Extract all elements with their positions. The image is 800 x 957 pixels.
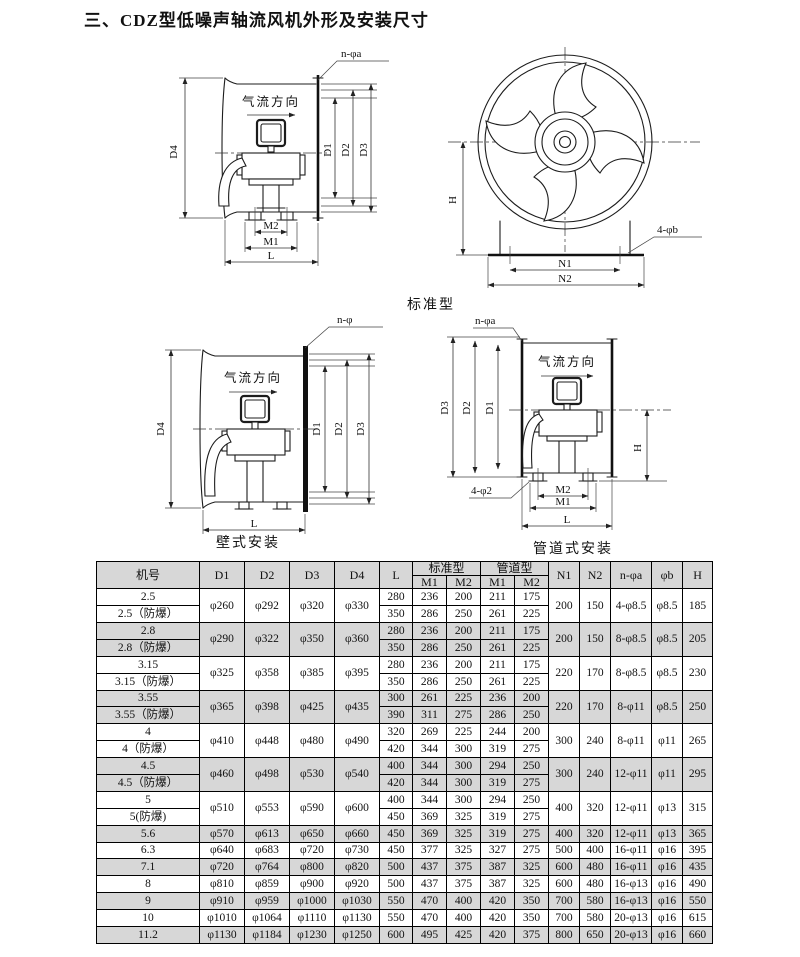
table-cell: φ910	[200, 893, 245, 910]
table-cell: 420	[380, 774, 413, 791]
machine-no-cell: 2.8	[97, 622, 200, 639]
table-header-cell: N1	[549, 562, 580, 589]
table-cell: 650	[580, 927, 611, 944]
table-cell: 286	[481, 707, 515, 724]
table-cell: 615	[683, 910, 713, 927]
table-cell: 350	[380, 606, 413, 623]
table-cell: 327	[481, 842, 515, 859]
duct-mount-drawing: 气流方向 n-φa D3 D2 D1 H 4-φ2 M2 M1 L	[425, 310, 715, 538]
machine-no-cell: 11.2	[97, 927, 200, 944]
table-cell: 300	[447, 758, 481, 775]
table-cell: 200	[515, 690, 549, 707]
table-header-cell: M1	[481, 575, 515, 589]
col-standard-type: 标准型	[413, 562, 481, 576]
table-cell: φ16	[652, 893, 683, 910]
table-header-cell: M2	[515, 575, 549, 589]
table-cell: φ395	[335, 656, 380, 690]
table-cell: 200	[447, 622, 481, 639]
table-cell: 175	[515, 656, 549, 673]
machine-no-cell: 7.1	[97, 859, 200, 876]
table-cell: 400	[580, 842, 611, 859]
table-cell: 700	[549, 893, 580, 910]
machine-no-cell: 5(防爆)	[97, 808, 200, 825]
table-cell: 20-φ13	[611, 910, 652, 927]
table-cell: 244	[481, 724, 515, 741]
table-cell: φ683	[245, 842, 290, 859]
table-cell: 211	[481, 656, 515, 673]
dim-label-d3: D3	[439, 401, 451, 415]
table-cell: 600	[549, 859, 580, 876]
machine-no-cell: 3.15（防爆）	[97, 673, 200, 690]
table-cell: 319	[481, 741, 515, 758]
table-row: 10φ1010φ1064φ1110φ1130550470400420350700…	[97, 910, 713, 927]
table-cell: 400	[380, 791, 413, 808]
table-cell: 286	[413, 673, 447, 690]
machine-no-cell: 4	[97, 724, 200, 741]
table-cell: 250	[515, 707, 549, 724]
table-cell: 320	[580, 791, 611, 825]
table-header-cell: D1	[200, 562, 245, 589]
table-cell: 16-φ13	[611, 893, 652, 910]
table-cell: φ365	[200, 690, 245, 724]
table-cell: φ13	[652, 825, 683, 842]
table-cell: 315	[683, 791, 713, 825]
table-cell: φ1250	[335, 927, 380, 944]
table-row: 4φ410φ448φ480φ4903202692252442003002408-…	[97, 724, 713, 741]
machine-no-cell: 4（防爆）	[97, 741, 200, 758]
table-cell: 400	[549, 825, 580, 842]
col-duct-type: 管道型	[481, 562, 549, 576]
table-cell: 275	[515, 774, 549, 791]
table-cell: 325	[447, 825, 481, 842]
table-cell: 437	[413, 859, 447, 876]
table-cell: 325	[447, 808, 481, 825]
table-cell: 300	[380, 690, 413, 707]
dim-label-d4: D4	[155, 422, 167, 436]
spec-table: 机号D1D2D3D4L标准型管道型N1N2n-φaφbHM1M2M1M2 2.5…	[96, 561, 713, 944]
table-cell: φ810	[200, 876, 245, 893]
table-cell: 495	[413, 927, 447, 944]
table-cell: 240	[580, 758, 611, 792]
table-cell: 170	[580, 656, 611, 690]
table-cell: 580	[580, 910, 611, 927]
table-cell: φ410	[200, 724, 245, 758]
table-cell: 236	[413, 589, 447, 606]
dim-label-n1: N1	[558, 258, 571, 270]
table-cell: 250	[447, 639, 481, 656]
table-cell: 205	[683, 622, 713, 656]
machine-no-cell: 3.15	[97, 656, 200, 673]
table-cell: 200	[549, 589, 580, 623]
table-cell: φ590	[290, 791, 335, 825]
table-cell: 225	[515, 606, 549, 623]
table-row: 6.3φ640φ683φ720φ730450377325327275500400…	[97, 842, 713, 859]
table-cell: 420	[481, 910, 515, 927]
wall-mount-drawing: 气流方向 n-φ D4 D1 D2 D3 L	[143, 306, 395, 538]
table-cell: 250	[515, 791, 549, 808]
table-cell: φ11	[652, 758, 683, 792]
table-cell: 350	[380, 673, 413, 690]
table-cell: 480	[580, 859, 611, 876]
table-cell: 4-φ8.5	[611, 589, 652, 623]
dim-label-l: L	[268, 250, 275, 262]
table-cell: φ435	[335, 690, 380, 724]
machine-no-cell: 2.5（防爆）	[97, 606, 200, 623]
table-cell: 280	[380, 656, 413, 673]
table-cell: φ325	[200, 656, 245, 690]
table-cell: φ490	[335, 724, 380, 758]
table-cell: 175	[515, 589, 549, 606]
table-cell: 275	[515, 741, 549, 758]
table-cell: 236	[413, 656, 447, 673]
table-cell: 225	[515, 673, 549, 690]
table-cell: 185	[683, 589, 713, 623]
spec-table-section: 机号D1D2D3D4L标准型管道型N1N2n-φaφbHM1M2M1M2 2.5…	[96, 561, 712, 944]
table-cell: φ1130	[335, 910, 380, 927]
table-cell: 269	[413, 724, 447, 741]
dim-label-l: L	[564, 514, 571, 526]
table-cell: 236	[413, 622, 447, 639]
table-cell: 16-φ13	[611, 876, 652, 893]
table-cell: 420	[481, 927, 515, 944]
table-cell: 12-φ11	[611, 825, 652, 842]
table-cell: 8-φ11	[611, 724, 652, 758]
table-cell: φ360	[335, 622, 380, 656]
table-cell: 250	[683, 690, 713, 724]
table-cell: 220	[549, 656, 580, 690]
bolt-count-label: n-φa	[475, 315, 496, 327]
table-cell: φ764	[245, 859, 290, 876]
table-cell: 400	[447, 910, 481, 927]
table-cell: 387	[481, 859, 515, 876]
table-cell: φ660	[335, 825, 380, 842]
table-cell: φ16	[652, 876, 683, 893]
table-cell: 365	[683, 825, 713, 842]
airflow-direction-label: 气流方向	[224, 370, 282, 385]
table-cell: 261	[481, 639, 515, 656]
machine-no-cell: 2.8（防爆）	[97, 639, 200, 656]
table-cell: φ1030	[335, 893, 380, 910]
table-cell: φ1110	[290, 910, 335, 927]
table-cell: 325	[515, 876, 549, 893]
dim-label-n2: N2	[558, 273, 571, 285]
table-cell: 387	[481, 876, 515, 893]
table-cell: φ613	[245, 825, 290, 842]
table-cell: 420	[380, 741, 413, 758]
table-cell: 450	[380, 825, 413, 842]
table-cell: 225	[515, 639, 549, 656]
table-cell: φ600	[335, 791, 380, 825]
table-cell: 375	[447, 859, 481, 876]
dim-label-d3: D3	[355, 422, 367, 436]
table-cell: 311	[413, 707, 447, 724]
table-cell: φ398	[245, 690, 290, 724]
table-cell: φ1230	[290, 927, 335, 944]
table-cell: 294	[481, 791, 515, 808]
machine-no-cell: 2.5	[97, 589, 200, 606]
table-header-cell: L	[380, 562, 413, 589]
dim-label-d4: D4	[168, 145, 180, 159]
table-cell: 425	[447, 927, 481, 944]
table-cell: 8-φ8.5	[611, 622, 652, 656]
table-cell: 300	[447, 791, 481, 808]
table-cell: 420	[481, 893, 515, 910]
bolt-count-label: n-φa	[341, 48, 362, 60]
table-cell: φ959	[245, 893, 290, 910]
dim-label-m1: M1	[555, 496, 570, 508]
table-cell: 319	[481, 774, 515, 791]
table-cell: 344	[413, 741, 447, 758]
table-cell: 8-φ11	[611, 690, 652, 724]
table-cell: φ530	[290, 758, 335, 792]
table-cell: 660	[683, 927, 713, 944]
table-header-cell: D4	[335, 562, 380, 589]
table-cell: 369	[413, 825, 447, 842]
table-cell: φ385	[290, 656, 335, 690]
table-cell: φ900	[290, 876, 335, 893]
table-cell: 480	[580, 876, 611, 893]
table-cell: 12-φ11	[611, 758, 652, 792]
table-cell: φ425	[290, 690, 335, 724]
table-cell: φ320	[290, 589, 335, 623]
table-header-cell: N2	[580, 562, 611, 589]
dim-label-h: H	[632, 444, 644, 452]
table-cell: 344	[413, 774, 447, 791]
table-cell: φ540	[335, 758, 380, 792]
dim-label-d1: D1	[322, 143, 334, 156]
table-cell: 240	[580, 724, 611, 758]
table-header-cell: φb	[652, 562, 683, 589]
table-cell: 280	[380, 622, 413, 639]
table-cell: 295	[683, 758, 713, 792]
table-row: 2.5φ260φ292φ320φ330280236200211175200150…	[97, 589, 713, 606]
table-cell: 275	[515, 825, 549, 842]
table-cell: 225	[447, 724, 481, 741]
table-cell: 580	[580, 893, 611, 910]
table-cell: 344	[413, 791, 447, 808]
standard-side-view-drawing: 气流方向 n-φa D4 D1 D2 D3 M2 M1 L	[125, 40, 393, 275]
caption-wall-mount: 壁式安装	[216, 532, 280, 552]
bolt-count-label: 4-φ2	[471, 485, 492, 497]
machine-no-cell: 3.55	[97, 690, 200, 707]
table-cell: φ322	[245, 622, 290, 656]
table-cell: φ448	[245, 724, 290, 758]
machine-no-cell: 4.5（防爆）	[97, 774, 200, 791]
table-cell: 350	[380, 639, 413, 656]
dim-label-m2: M2	[263, 220, 278, 232]
dim-label-d3: D3	[358, 143, 370, 157]
table-cell: φ292	[245, 589, 290, 623]
table-cell: 230	[683, 656, 713, 690]
table-cell: φ1130	[200, 927, 245, 944]
table-cell: 319	[481, 808, 515, 825]
table-cell: 325	[515, 859, 549, 876]
table-cell: 200	[515, 724, 549, 741]
bolt-count-label: n-φ	[337, 314, 353, 326]
dim-label-h: H	[447, 196, 459, 204]
machine-no-cell: 5.6	[97, 825, 200, 842]
dim-label-m1: M1	[263, 236, 278, 248]
table-cell: 12-φ11	[611, 791, 652, 825]
table-cell: 700	[549, 910, 580, 927]
table-cell: φ510	[200, 791, 245, 825]
table-cell: 8-φ8.5	[611, 656, 652, 690]
table-header-cell: M2	[447, 575, 481, 589]
table-cell: 16-φ11	[611, 842, 652, 859]
table-row: 7.1φ720φ764φ800φ820500437375387325600480…	[97, 859, 713, 876]
table-row: 2.8φ290φ322φ350φ360280236200211175200150…	[97, 622, 713, 639]
table-cell: φ859	[245, 876, 290, 893]
table-cell: 344	[413, 758, 447, 775]
table-cell: 261	[413, 690, 447, 707]
table-cell: φ920	[335, 876, 380, 893]
table-cell: 400	[380, 758, 413, 775]
table-cell: 600	[380, 927, 413, 944]
table-cell: φ350	[290, 622, 335, 656]
dim-label-m2: M2	[555, 484, 570, 496]
spec-table-body: 2.5φ260φ292φ320φ330280236200211175200150…	[97, 589, 713, 944]
table-cell: φ553	[245, 791, 290, 825]
table-cell: 600	[549, 876, 580, 893]
table-cell: 470	[413, 910, 447, 927]
table-cell: 211	[481, 622, 515, 639]
table-row: 9φ910φ959φ1000φ1030550470400420350700580…	[97, 893, 713, 910]
table-cell: 490	[683, 876, 713, 893]
table-cell: 500	[380, 876, 413, 893]
table-cell: 200	[447, 589, 481, 606]
dim-label-d1: D1	[311, 422, 323, 435]
dim-label-d2: D2	[333, 422, 345, 435]
table-cell: 550	[380, 893, 413, 910]
caption-duct-mount: 管道式安装	[533, 538, 613, 558]
table-cell: 320	[580, 825, 611, 842]
machine-no-cell: 5	[97, 791, 200, 808]
table-header-cell: D3	[290, 562, 335, 589]
table-cell: 286	[413, 606, 447, 623]
table-cell: φ730	[335, 842, 380, 859]
table-cell: φ8.5	[652, 656, 683, 690]
table-row: 4.5φ460φ498φ530φ540400344300294250300240…	[97, 758, 713, 775]
table-cell: φ16	[652, 927, 683, 944]
table-cell: 500	[549, 842, 580, 859]
table-cell: 16-φ11	[611, 859, 652, 876]
dim-label-d2: D2	[461, 401, 473, 414]
table-cell: 225	[447, 690, 481, 707]
table-cell: φ820	[335, 859, 380, 876]
table-cell: φ13	[652, 791, 683, 825]
table-cell: 265	[683, 724, 713, 758]
table-row: 3.15φ325φ358φ385φ39528023620021117522017…	[97, 656, 713, 673]
airflow-direction-label: 气流方向	[242, 94, 300, 109]
table-cell: φ16	[652, 842, 683, 859]
table-cell: 275	[447, 707, 481, 724]
table-cell: 395	[683, 842, 713, 859]
table-cell: 150	[580, 589, 611, 623]
table-cell: 175	[515, 622, 549, 639]
table-cell: φ640	[200, 842, 245, 859]
table-cell: φ498	[245, 758, 290, 792]
table-cell: 375	[515, 927, 549, 944]
table-cell: 20-φ13	[611, 927, 652, 944]
table-cell: φ480	[290, 724, 335, 758]
table-cell: φ16	[652, 859, 683, 876]
table-cell: φ8.5	[652, 690, 683, 724]
table-cell: 500	[380, 859, 413, 876]
table-cell: φ570	[200, 825, 245, 842]
table-cell: 800	[549, 927, 580, 944]
dim-label-l: L	[251, 518, 258, 530]
table-cell: 400	[549, 791, 580, 825]
table-cell: 275	[515, 808, 549, 825]
table-cell: φ650	[290, 825, 335, 842]
table-cell: φ1184	[245, 927, 290, 944]
table-header-cell: D2	[245, 562, 290, 589]
table-cell: φ720	[290, 842, 335, 859]
table-cell: φ16	[652, 910, 683, 927]
col-machine-no: 机号	[97, 562, 200, 589]
table-cell: 375	[447, 876, 481, 893]
table-cell: 450	[380, 842, 413, 859]
table-cell: φ1000	[290, 893, 335, 910]
table-cell: 319	[481, 825, 515, 842]
table-row: 3.55φ365φ398φ425φ43530026122523620022017…	[97, 690, 713, 707]
table-cell: 261	[481, 673, 515, 690]
table-cell: 400	[447, 893, 481, 910]
table-cell: φ358	[245, 656, 290, 690]
table-cell: 320	[380, 724, 413, 741]
table-cell: 350	[515, 910, 549, 927]
table-cell: 150	[580, 622, 611, 656]
machine-no-cell: 10	[97, 910, 200, 927]
table-cell: 390	[380, 707, 413, 724]
table-header-cell: H	[683, 562, 713, 589]
table-cell: φ330	[335, 589, 380, 623]
table-cell: 300	[447, 774, 481, 791]
table-cell: φ11	[652, 724, 683, 758]
table-cell: 261	[481, 606, 515, 623]
table-cell: 250	[515, 758, 549, 775]
dim-label-d1: D1	[484, 401, 496, 414]
table-cell: 550	[683, 893, 713, 910]
table-cell: 236	[481, 690, 515, 707]
table-cell: 450	[380, 808, 413, 825]
table-cell: φ290	[200, 622, 245, 656]
table-cell: φ460	[200, 758, 245, 792]
table-row: 5φ510φ553φ590φ60040034430029425040032012…	[97, 791, 713, 808]
table-row: 8φ810φ859φ900φ92050043737538732560048016…	[97, 876, 713, 893]
table-cell: 377	[413, 842, 447, 859]
table-cell: 437	[413, 876, 447, 893]
machine-no-cell: 3.55（防爆）	[97, 707, 200, 724]
bolt-count-label: 4-φb	[657, 224, 679, 236]
machine-no-cell: 9	[97, 893, 200, 910]
table-cell: 300	[549, 724, 580, 758]
table-cell: 300	[447, 741, 481, 758]
table-cell: 369	[413, 808, 447, 825]
table-row: 5.6φ570φ613φ650φ660450369325319275400320…	[97, 825, 713, 842]
table-cell: φ720	[200, 859, 245, 876]
table-row: 11.2φ1130φ1184φ1230φ12506004954254203758…	[97, 927, 713, 944]
table-cell: 211	[481, 589, 515, 606]
table-cell: 435	[683, 859, 713, 876]
machine-no-cell: 8	[97, 876, 200, 893]
page-title: 三、CDZ型低噪声轴流风机外形及安装尺寸	[84, 6, 429, 31]
table-cell: 286	[413, 639, 447, 656]
spec-table-head: 机号D1D2D3D4L标准型管道型N1N2n-φaφbHM1M2M1M2	[97, 562, 713, 589]
table-cell: φ260	[200, 589, 245, 623]
table-header-cell: n-φa	[611, 562, 652, 589]
table-header-cell: M1	[413, 575, 447, 589]
